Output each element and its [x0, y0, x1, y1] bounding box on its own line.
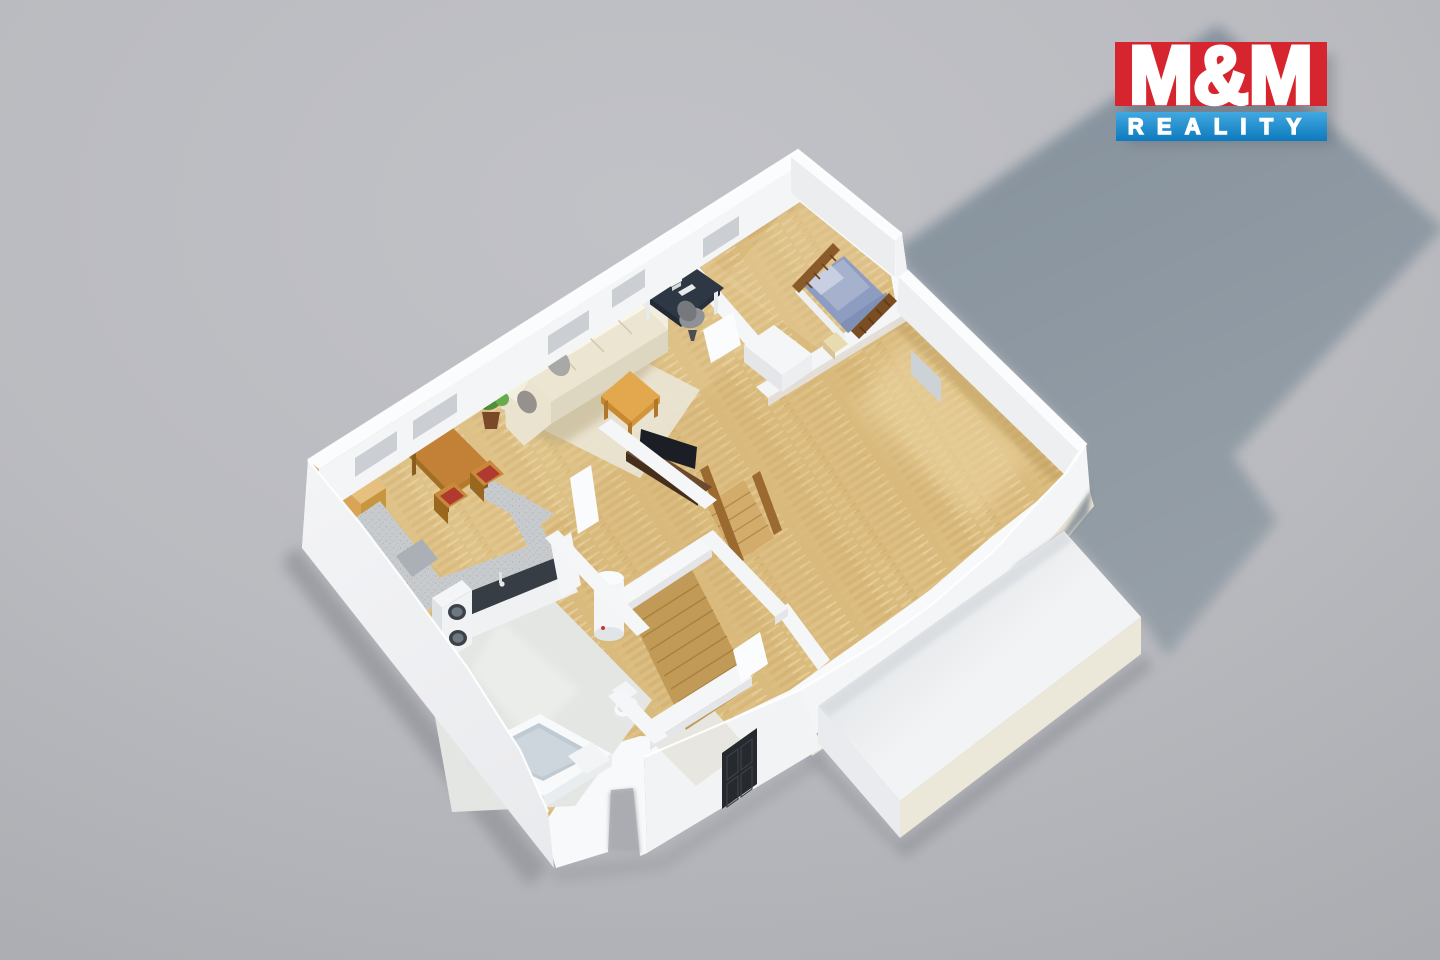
- svg-text:M&M: M&M: [1129, 30, 1313, 121]
- svg-text:REALITY: REALITY: [1128, 114, 1315, 139]
